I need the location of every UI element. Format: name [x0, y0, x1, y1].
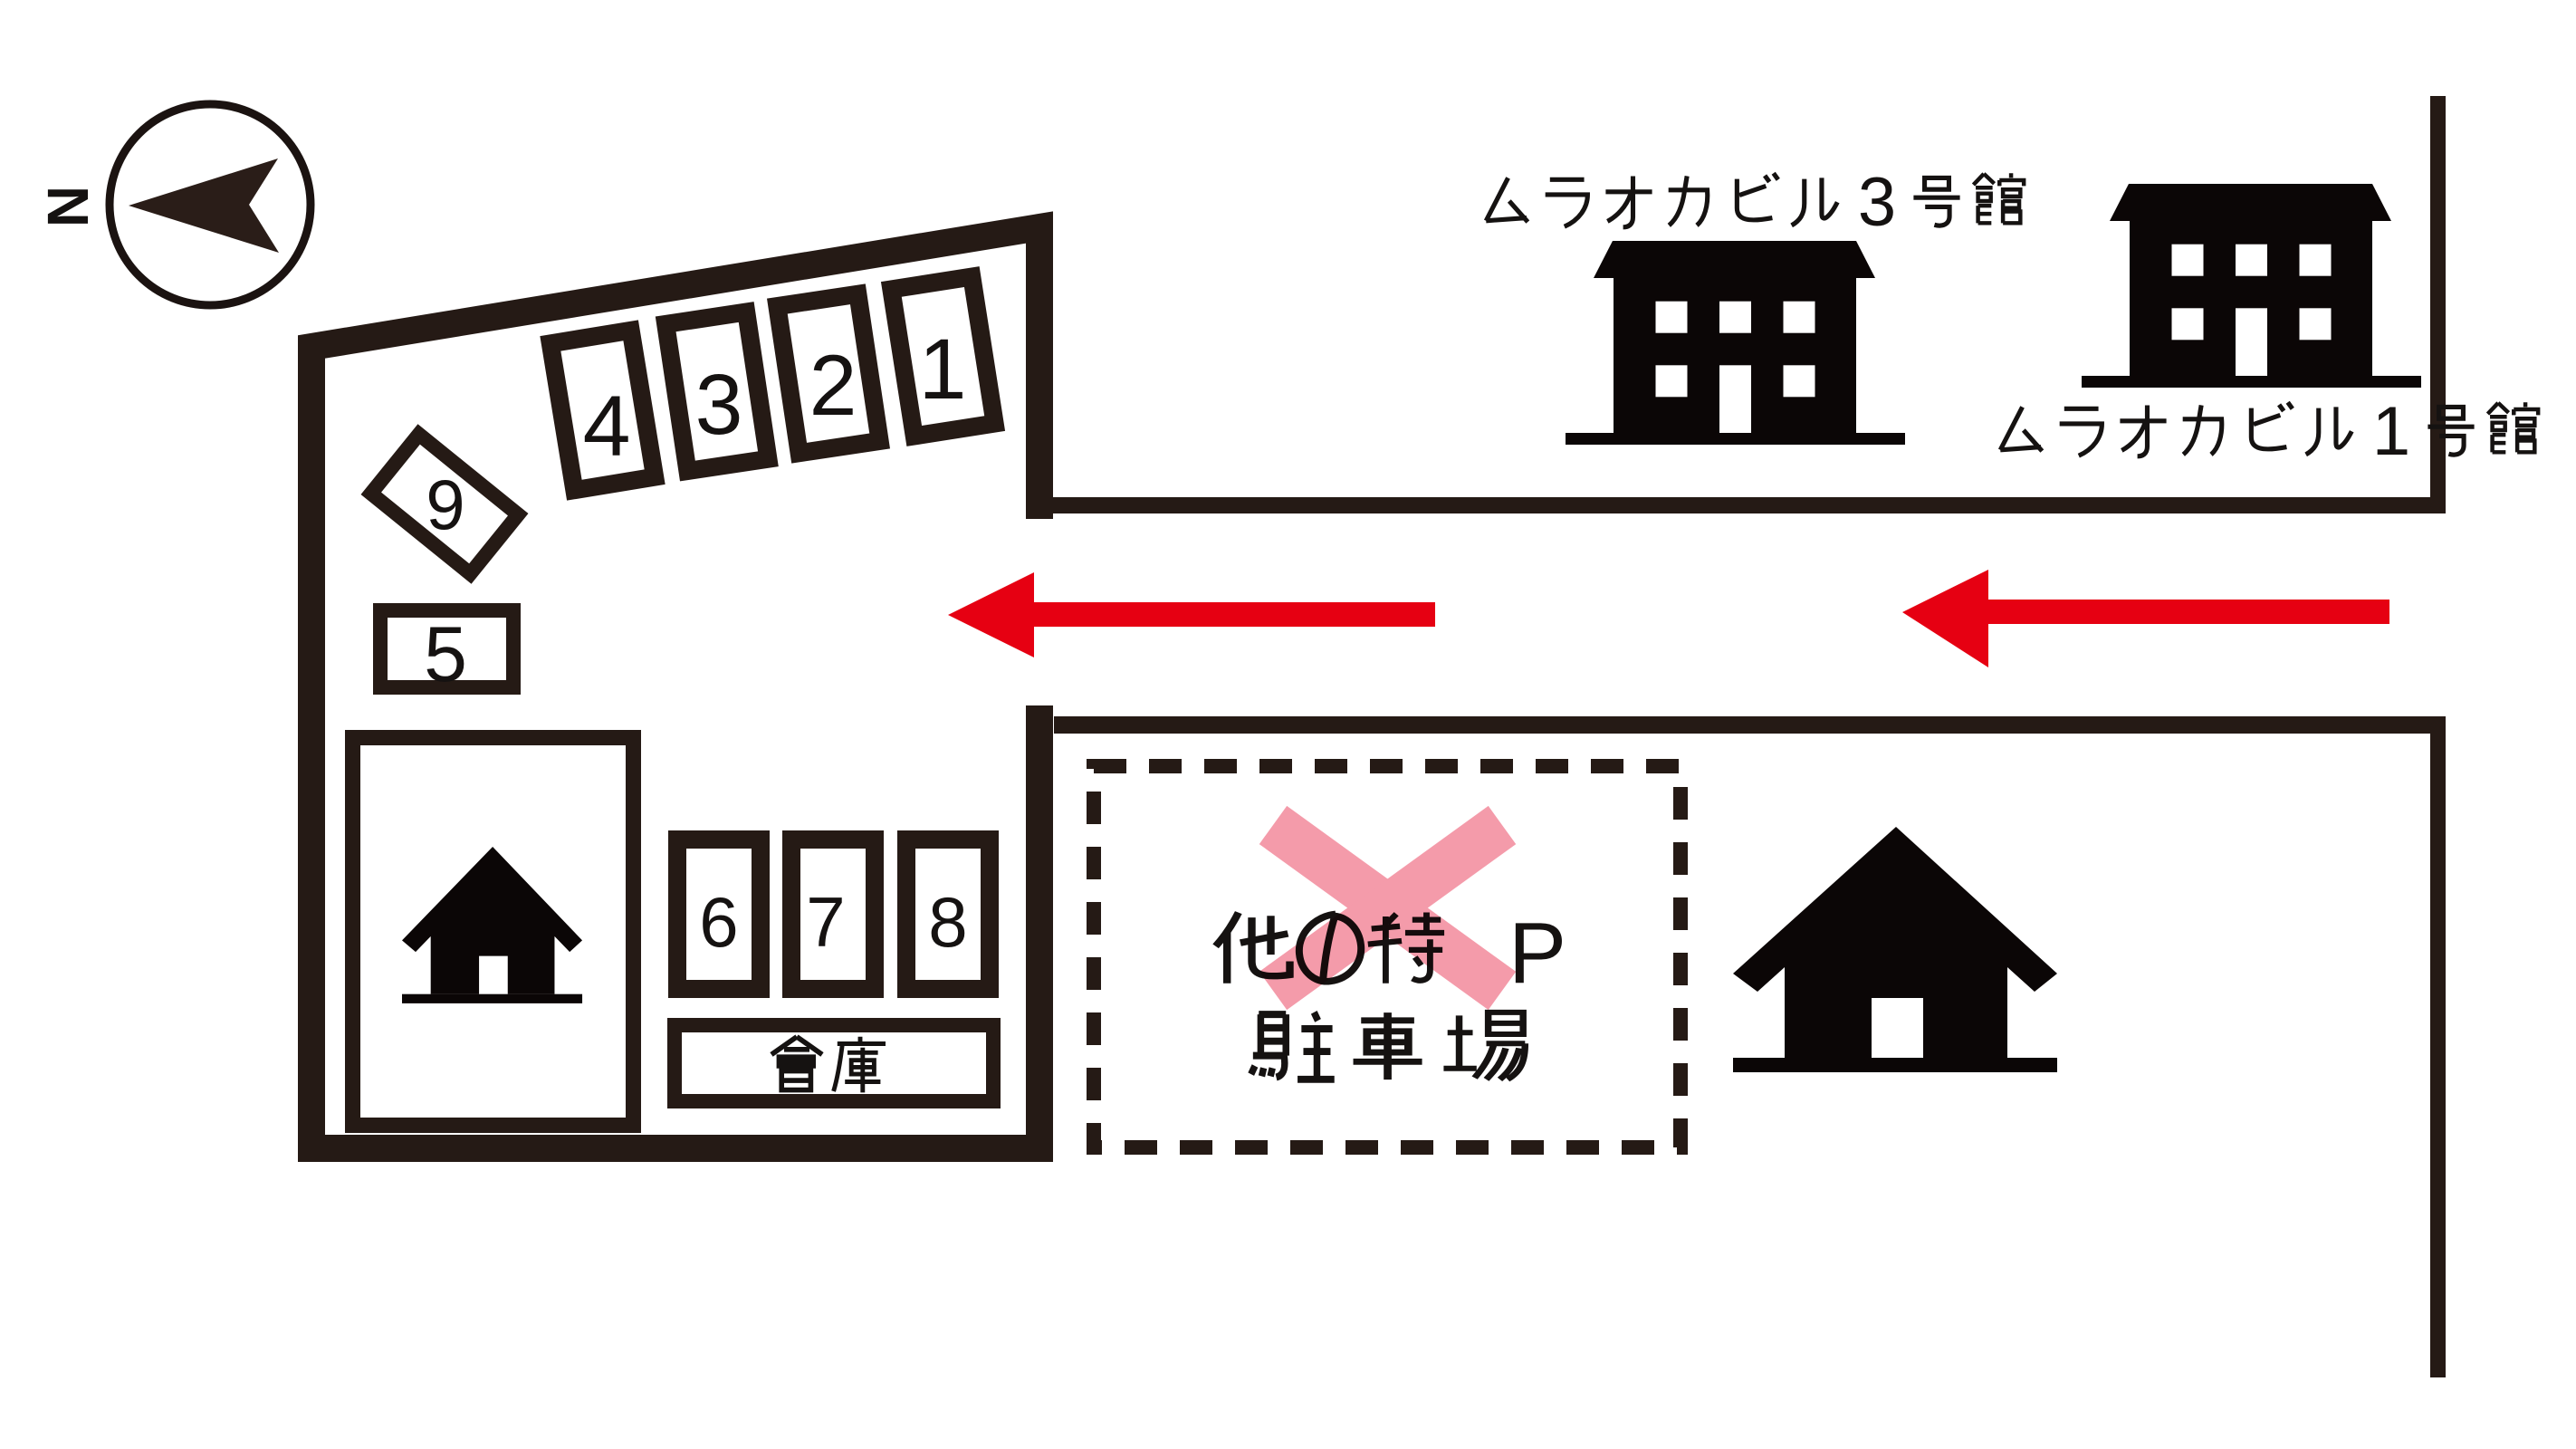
svg-text:P: P — [1508, 905, 1566, 1002]
svg-text:8: 8 — [928, 882, 967, 962]
svg-text:3: 3 — [1858, 164, 1896, 241]
svg-text:4: 4 — [583, 379, 631, 475]
svg-text:6: 6 — [699, 882, 738, 962]
svg-text:9: 9 — [426, 465, 464, 544]
svg-text:1: 1 — [919, 321, 967, 417]
svg-text:3: 3 — [695, 357, 743, 453]
svg-text:1: 1 — [2372, 393, 2410, 470]
svg-text:5: 5 — [424, 611, 467, 698]
svg-text:2: 2 — [809, 338, 857, 434]
svg-text:7: 7 — [806, 882, 845, 962]
svg-text:N: N — [35, 186, 101, 227]
